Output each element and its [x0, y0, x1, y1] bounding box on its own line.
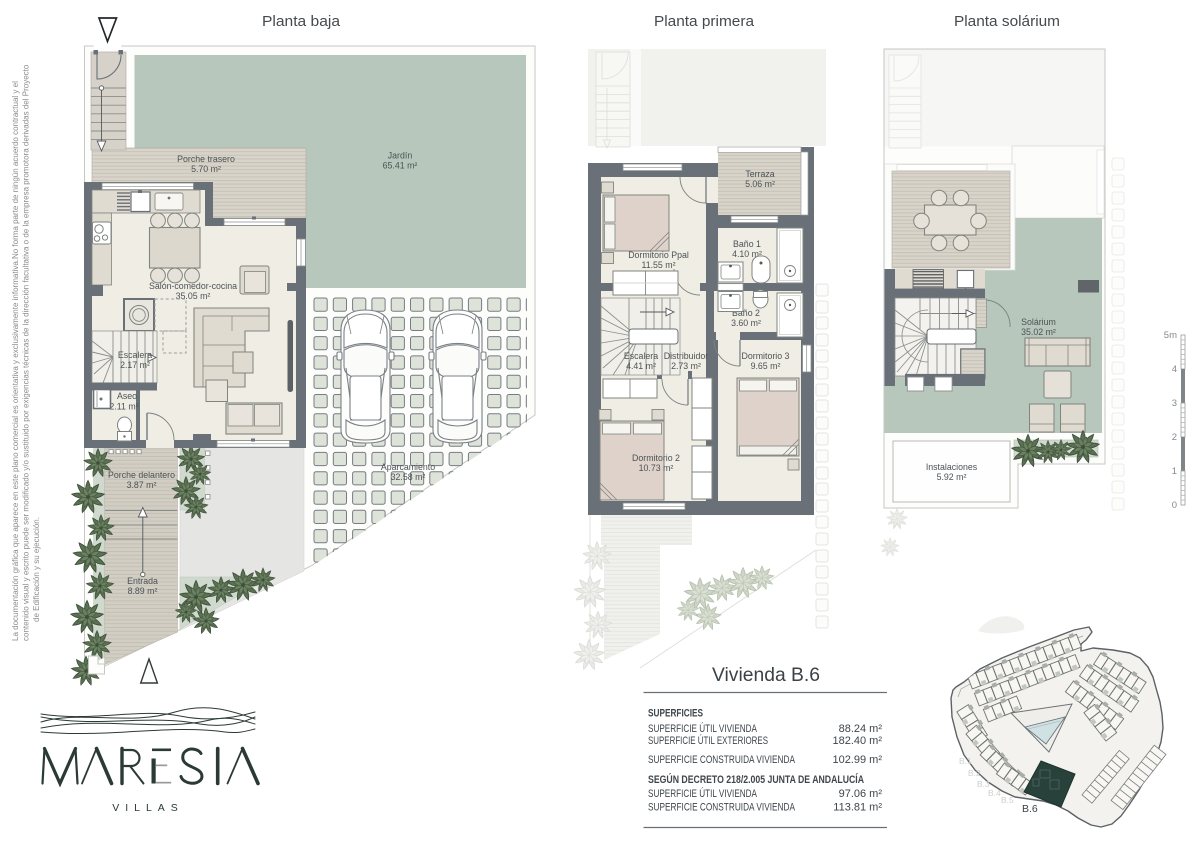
svg-text:10.73 m²: 10.73 m² — [639, 463, 674, 473]
svg-text:SUPERFICIE ÚTIL VIVIENDA: SUPERFICIE ÚTIL VIVIENDA — [648, 787, 757, 800]
svg-text:Planta solárium: Planta solárium — [954, 14, 1060, 30]
svg-text:B.2: B.2 — [968, 768, 981, 778]
svg-text:97.06 m²: 97.06 m² — [839, 788, 883, 800]
svg-text:Escalera: Escalera — [624, 351, 658, 361]
svg-text:3.87 m²: 3.87 m² — [127, 480, 157, 490]
svg-text:B.5: B.5 — [1001, 795, 1014, 805]
svg-text:SUPERFICIE CONSTRUIDA VIVIENDA: SUPERFICIE CONSTRUIDA VIVIENDA — [648, 754, 795, 766]
svg-text:SUPERFICIE ÚTIL EXTERIORES: SUPERFICIE ÚTIL EXTERIORES — [648, 734, 768, 747]
svg-text:5.06 m²: 5.06 m² — [745, 179, 775, 189]
svg-text:Salón-comedor-cocina: Salón-comedor-cocina — [149, 281, 237, 291]
svg-text:65.41 m²: 65.41 m² — [383, 161, 418, 171]
svg-text:Aparcamiento: Aparcamiento — [381, 462, 435, 472]
svg-text:2: 2 — [1172, 432, 1177, 443]
svg-text:Porche trasero: Porche trasero — [177, 154, 235, 164]
svg-text:0: 0 — [1172, 500, 1177, 511]
svg-text:2.17 m²: 2.17 m² — [120, 360, 150, 370]
svg-text:Instalaciones: Instalaciones — [926, 462, 978, 472]
svg-text:Vivienda B.6: Vivienda B.6 — [712, 664, 820, 686]
svg-text:4.41 m²: 4.41 m² — [626, 361, 656, 371]
svg-text:Aseo: Aseo — [117, 391, 137, 401]
svg-text:8.89 m²: 8.89 m² — [128, 586, 158, 596]
svg-text:182.40 m²: 182.40 m² — [832, 735, 882, 747]
svg-text:3.60 m²: 3.60 m² — [731, 318, 761, 328]
svg-text:Entrada: Entrada — [127, 576, 158, 586]
svg-text:Baño 1: Baño 1 — [733, 239, 761, 249]
svg-text:Planta primera: Planta primera — [654, 14, 755, 30]
svg-text:Solárium: Solárium — [1021, 317, 1056, 327]
svg-text:4: 4 — [1172, 364, 1177, 375]
svg-text:B.4: B.4 — [988, 788, 1001, 798]
svg-text:9.65 m²: 9.65 m² — [751, 361, 781, 371]
svg-text:32.58 m²: 32.58 m² — [391, 472, 426, 482]
svg-text:Porche delantero: Porche delantero — [108, 470, 175, 480]
svg-text:La documentación gráfica que a: La documentación gráfica que aparece en … — [11, 81, 20, 641]
svg-text:de Edificación y su ejecución.: de Edificación y su ejecución. — [32, 517, 41, 622]
svg-text:SUPERFICIE ÚTIL VIVIENDA: SUPERFICIE ÚTIL VIVIENDA — [648, 722, 757, 735]
svg-text:SUPERFICIE CONSTRUIDA VIVIENDA: SUPERFICIE CONSTRUIDA VIVIENDA — [648, 802, 795, 814]
svg-text:35.02 m²: 35.02 m² — [1021, 327, 1056, 337]
svg-text:11.55 m²: 11.55 m² — [641, 260, 675, 270]
svg-text:Escalera: Escalera — [118, 350, 152, 360]
svg-text:Dormitorio 3: Dormitorio 3 — [742, 351, 790, 361]
svg-text:contenido visual y escrito pue: contenido visual y escrito puede ser mod… — [22, 64, 31, 641]
svg-text:2.11 m²: 2.11 m² — [109, 402, 138, 412]
svg-text:Planta baja: Planta baja — [262, 14, 341, 30]
svg-text:2.73 m²: 2.73 m² — [671, 361, 701, 371]
svg-text:Distribuidor: Distribuidor — [664, 351, 709, 361]
svg-text:5.92 m²: 5.92 m² — [937, 472, 967, 482]
svg-text:3: 3 — [1172, 398, 1177, 409]
svg-text:B.1: B.1 — [959, 756, 972, 766]
svg-text:102.99 m²: 102.99 m² — [832, 754, 882, 766]
svg-text:SEGÚN DECRETO 218/2.005 JUNTA: SEGÚN DECRETO 218/2.005 JUNTA DE ANDALUC… — [648, 773, 864, 786]
svg-text:Terraza: Terraza — [745, 169, 774, 179]
svg-text:35.05 m²: 35.05 m² — [176, 291, 211, 301]
svg-text:88.24 m²: 88.24 m² — [839, 723, 883, 735]
svg-text:VILLAS: VILLAS — [112, 802, 184, 814]
svg-text:B.6: B.6 — [1022, 803, 1038, 815]
svg-text:Jardín: Jardín — [388, 151, 413, 161]
svg-text:5.70 m²: 5.70 m² — [191, 164, 221, 174]
svg-text:1: 1 — [1172, 466, 1177, 477]
svg-text:5m: 5m — [1164, 330, 1177, 341]
svg-text:SUPERFICIES: SUPERFICIES — [648, 708, 703, 720]
svg-text:Dormitorio 2: Dormitorio 2 — [632, 453, 680, 463]
svg-text:113.81 m²: 113.81 m² — [833, 802, 882, 814]
